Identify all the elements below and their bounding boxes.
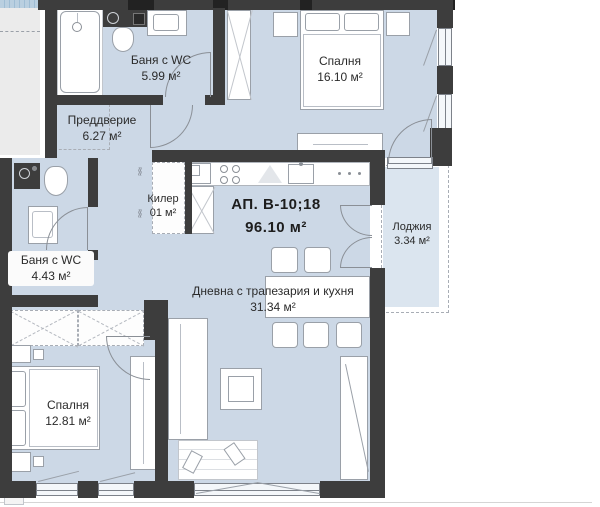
- stove-burner-3: [220, 176, 228, 184]
- bath1-label: Баня с WC 5.99 м²: [105, 53, 217, 84]
- nightstand2-top-lamp: [33, 349, 44, 360]
- stove-burner-4: [232, 176, 240, 184]
- bedroom1-name: Спалня: [319, 54, 361, 68]
- wall-bottom-b: [78, 481, 98, 498]
- nightstand1-right: [386, 12, 410, 36]
- bedroom2-name: Спалня: [47, 398, 89, 412]
- wall-bedroom1-right-a: [437, 0, 453, 28]
- bedroom1-area: 16.10 м²: [292, 70, 388, 86]
- apartment-title: АП. В-10;18 96.10 м²: [212, 194, 340, 239]
- living-area: 31.34 м²: [168, 300, 378, 316]
- kitchen-sink-icon: [288, 164, 314, 184]
- loggia-area: 3.34 м²: [384, 234, 440, 248]
- living-name: Дневна с трапезария и кухня: [192, 284, 353, 298]
- wall-top-column-1: [128, 0, 154, 10]
- bath2-label: Баня с WC 4.43 м²: [8, 251, 94, 286]
- sofa-icon: [168, 318, 208, 440]
- bathroom1-counter-box-icon: [133, 13, 145, 25]
- dining-chair-top-2: [304, 247, 331, 273]
- bathroom1-sink-icon: [107, 12, 119, 24]
- dresser1-line: [313, 144, 368, 145]
- bedroom1-window-1: [438, 28, 452, 66]
- apartment-total-area: 96.10 м²: [245, 219, 307, 236]
- wall-bottom-d: [320, 481, 385, 498]
- dining-chair-bottom-1: [272, 322, 298, 348]
- bath1-area: 5.99 м²: [105, 69, 217, 85]
- floor-plan: ≈≈ ≈≈: [0, 0, 600, 507]
- bedroom2-window-2: [98, 483, 134, 496]
- wall-top-column-3: [300, 0, 312, 10]
- coffee-table-inner: [228, 376, 254, 402]
- radiator-symbol-1: ≈≈: [135, 167, 145, 175]
- stove-burner-1: [220, 165, 228, 173]
- wall-bottom-a: [0, 481, 36, 498]
- counter-knobs-icon: [338, 172, 361, 175]
- bath1-name: Баня с WC: [131, 53, 191, 67]
- wall-bedroom1-right-b: [437, 66, 453, 94]
- bedroom2-window-1: [36, 483, 78, 496]
- bedroom2-area: 12.81 м²: [26, 414, 110, 430]
- closet-area: 01 м²: [137, 206, 189, 220]
- nightstand2-bottom: [9, 452, 31, 472]
- hallway-label: Преддверие 6.27 м²: [50, 113, 154, 144]
- apartment-number: АП. В-10;18: [231, 196, 320, 213]
- dining-chair-bottom-3: [336, 322, 362, 348]
- loggia-name: Лоджия: [393, 221, 432, 233]
- dining-chair-bottom-2: [303, 322, 329, 348]
- wall-bath2-bottom: [0, 295, 98, 307]
- bottom-left-mark: [4, 498, 24, 505]
- bed1-pillow-left: [305, 13, 340, 31]
- washing-machine-knob: [32, 166, 37, 171]
- living-label: Дневна с трапезария и кухня 31.34 м²: [168, 284, 378, 315]
- closet-name: Килер: [147, 193, 178, 205]
- toilet2-icon: [44, 166, 68, 196]
- kitchen-faucet-icon: [299, 162, 303, 166]
- wall-left-lower: [0, 158, 12, 498]
- nightstand1-left: [273, 12, 298, 37]
- wall-kitchen-top: [152, 150, 385, 162]
- washbasin1-icon: [153, 14, 179, 31]
- bath2-area: 4.43 м²: [12, 269, 90, 285]
- bed1-pillow-right: [344, 13, 379, 31]
- wall-bath1-bottom: [45, 95, 163, 105]
- wall-living-right-upper: [370, 150, 385, 205]
- bedroom2-label: Спалня 12.81 м²: [26, 398, 110, 429]
- hallway-area: 6.27 м²: [50, 129, 154, 145]
- tall-cabinet-right: [340, 356, 368, 480]
- bedroom1-window-2: [438, 94, 452, 132]
- wall-bedroom2-top-chunk: [144, 300, 168, 340]
- hallway-name: Преддверие: [68, 113, 137, 127]
- wall-bottom-c: [134, 481, 194, 498]
- loggia-label: Лоджия 3.34 м²: [384, 220, 440, 249]
- toilet1-icon: [112, 27, 134, 52]
- stove-burner-2: [232, 165, 240, 173]
- bath2-name: Баня с WC: [21, 253, 81, 267]
- dining-chair-top-1: [271, 247, 298, 273]
- adjacent-loggia-strip: [0, 0, 40, 8]
- shower-hose-icon: [77, 13, 78, 22]
- nightstand2-bottom-lamp: [33, 456, 44, 467]
- wall-bedroom1-right-c: [430, 128, 452, 166]
- closet-label: Килер 01 м²: [137, 192, 189, 221]
- bottom-border-line: [0, 502, 592, 503]
- adjacent-dashed-line: [0, 31, 40, 32]
- wall-top: [38, 0, 455, 10]
- washing-machine-door: [19, 168, 30, 179]
- sofa-back-line: [180, 324, 181, 434]
- dishrack-triangle-icon: [258, 165, 282, 183]
- nightstand2-top: [9, 345, 31, 363]
- wall-bath2-right-upper: [88, 158, 98, 207]
- bedroom1-label: Спалня 16.10 м²: [292, 54, 388, 85]
- shower-head-icon: [72, 22, 82, 32]
